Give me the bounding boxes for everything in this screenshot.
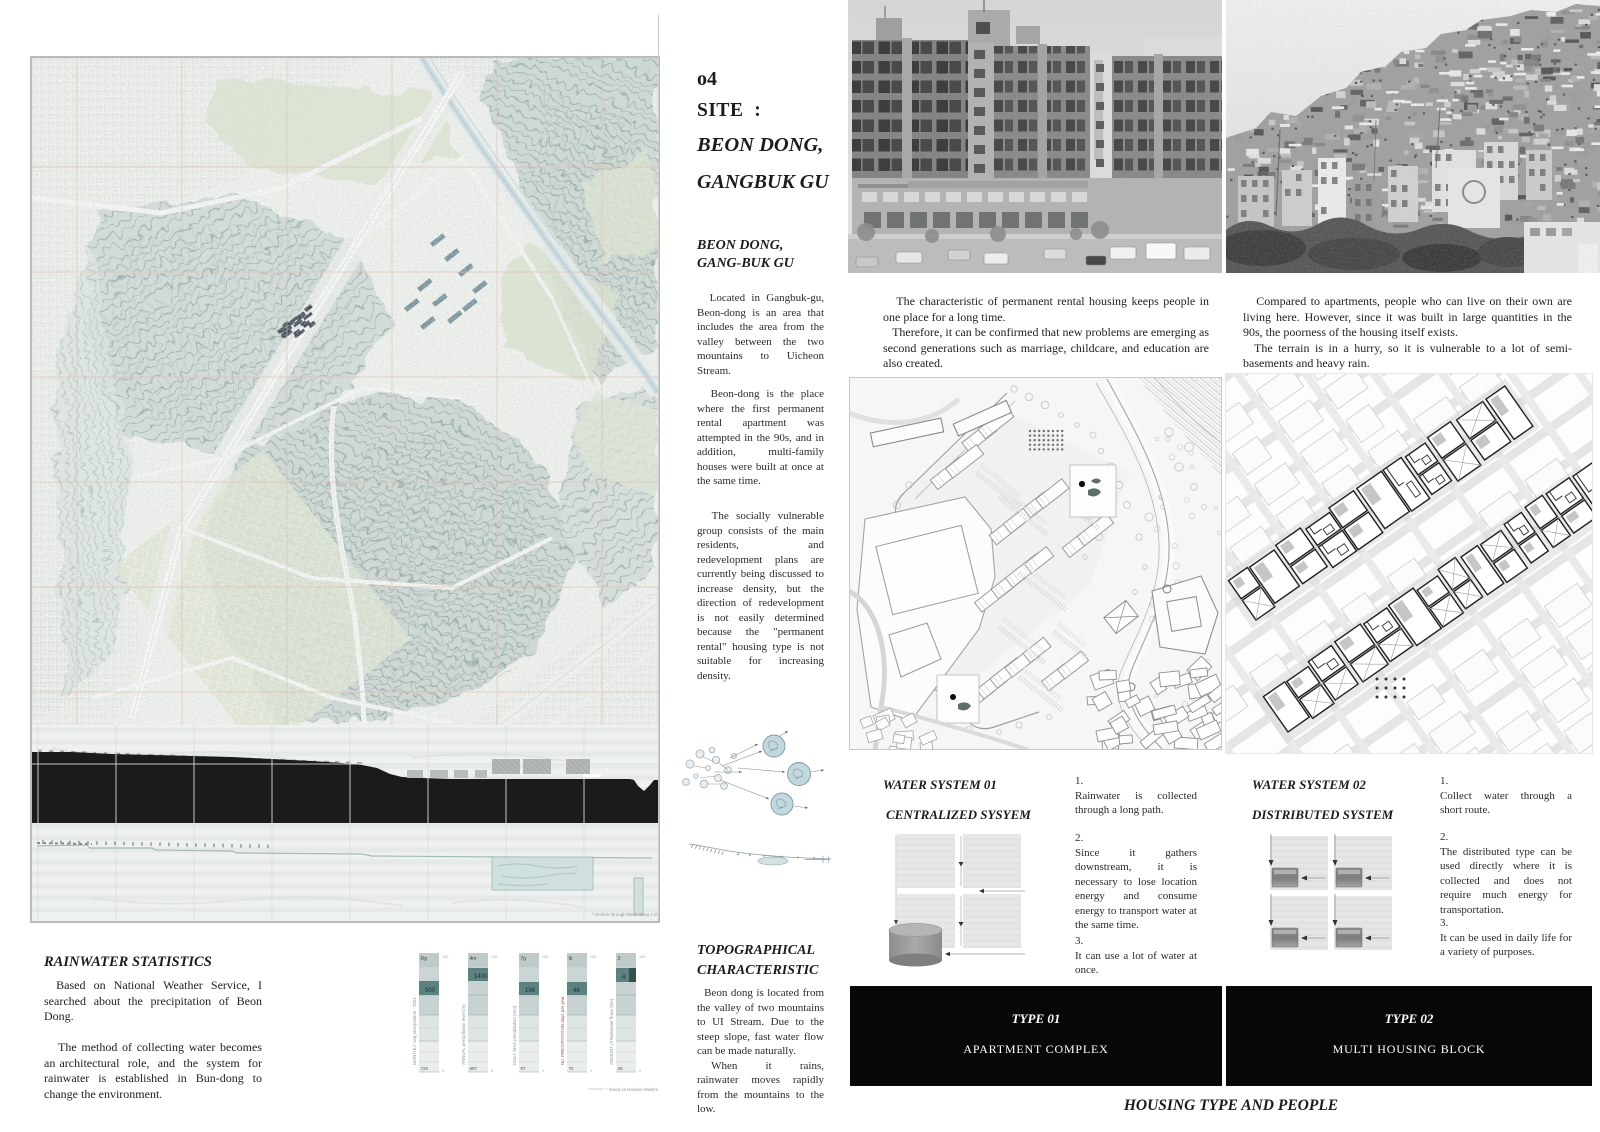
svg-text:Rg: Rg [421,956,428,962]
svg-text:28: 28 [618,1066,624,1071]
svg-text:No. PRECIPITATION days per yea: No. PRECIPITATION days per year [560,996,565,1065]
svg-text:697: 697 [470,1066,478,1071]
svg-text:100: 100 [639,955,645,959]
svg-text:DAILY MAX precipitation (mm): DAILY MAX precipitation (mm) [512,1005,517,1065]
svg-text:100: 100 [542,955,548,959]
svg-text:* section through Beon-dong 1:: * section through Beon-dong 1:2000 [592,912,658,917]
svg-text:46: 46 [573,988,580,994]
svg-text:* based on National Weather Se: * based on National Weather Service [606,1087,658,1092]
svg-text:0: 0 [442,1069,444,1073]
svg-text:0: 0 [542,1069,544,1073]
svg-text:100: 100 [442,955,448,959]
svg-text:500: 500 [425,988,436,994]
svg-text:7g: 7g [521,956,527,962]
svg-text:720: 720 [421,1066,429,1071]
svg-text:100: 100 [590,955,596,959]
svg-text:ANNUAL precipitation level (m): ANNUAL precipitation level (m) [461,1004,466,1065]
svg-text:196: 196 [525,988,536,994]
svg-text:3: 3 [618,956,621,962]
svg-text:100: 100 [491,955,497,959]
svg-text:0: 0 [491,1069,493,1073]
svg-text:9r: 9r [569,956,574,962]
svg-text:MONTHLY avg precipitation - 20: MONTHLY avg precipitation - 2021 [412,997,417,1065]
svg-text:0: 0 [639,1069,641,1073]
svg-text:1400: 1400 [474,974,488,980]
svg-text:4m: 4m [470,956,477,962]
svg-text:AMOUNT of Rainwater flows (ton: AMOUNT of Rainwater flows (ton) [609,998,614,1065]
svg-text:75: 75 [569,1066,575,1071]
svg-text:0: 0 [590,1069,592,1073]
svg-text:87: 87 [521,1066,527,1071]
